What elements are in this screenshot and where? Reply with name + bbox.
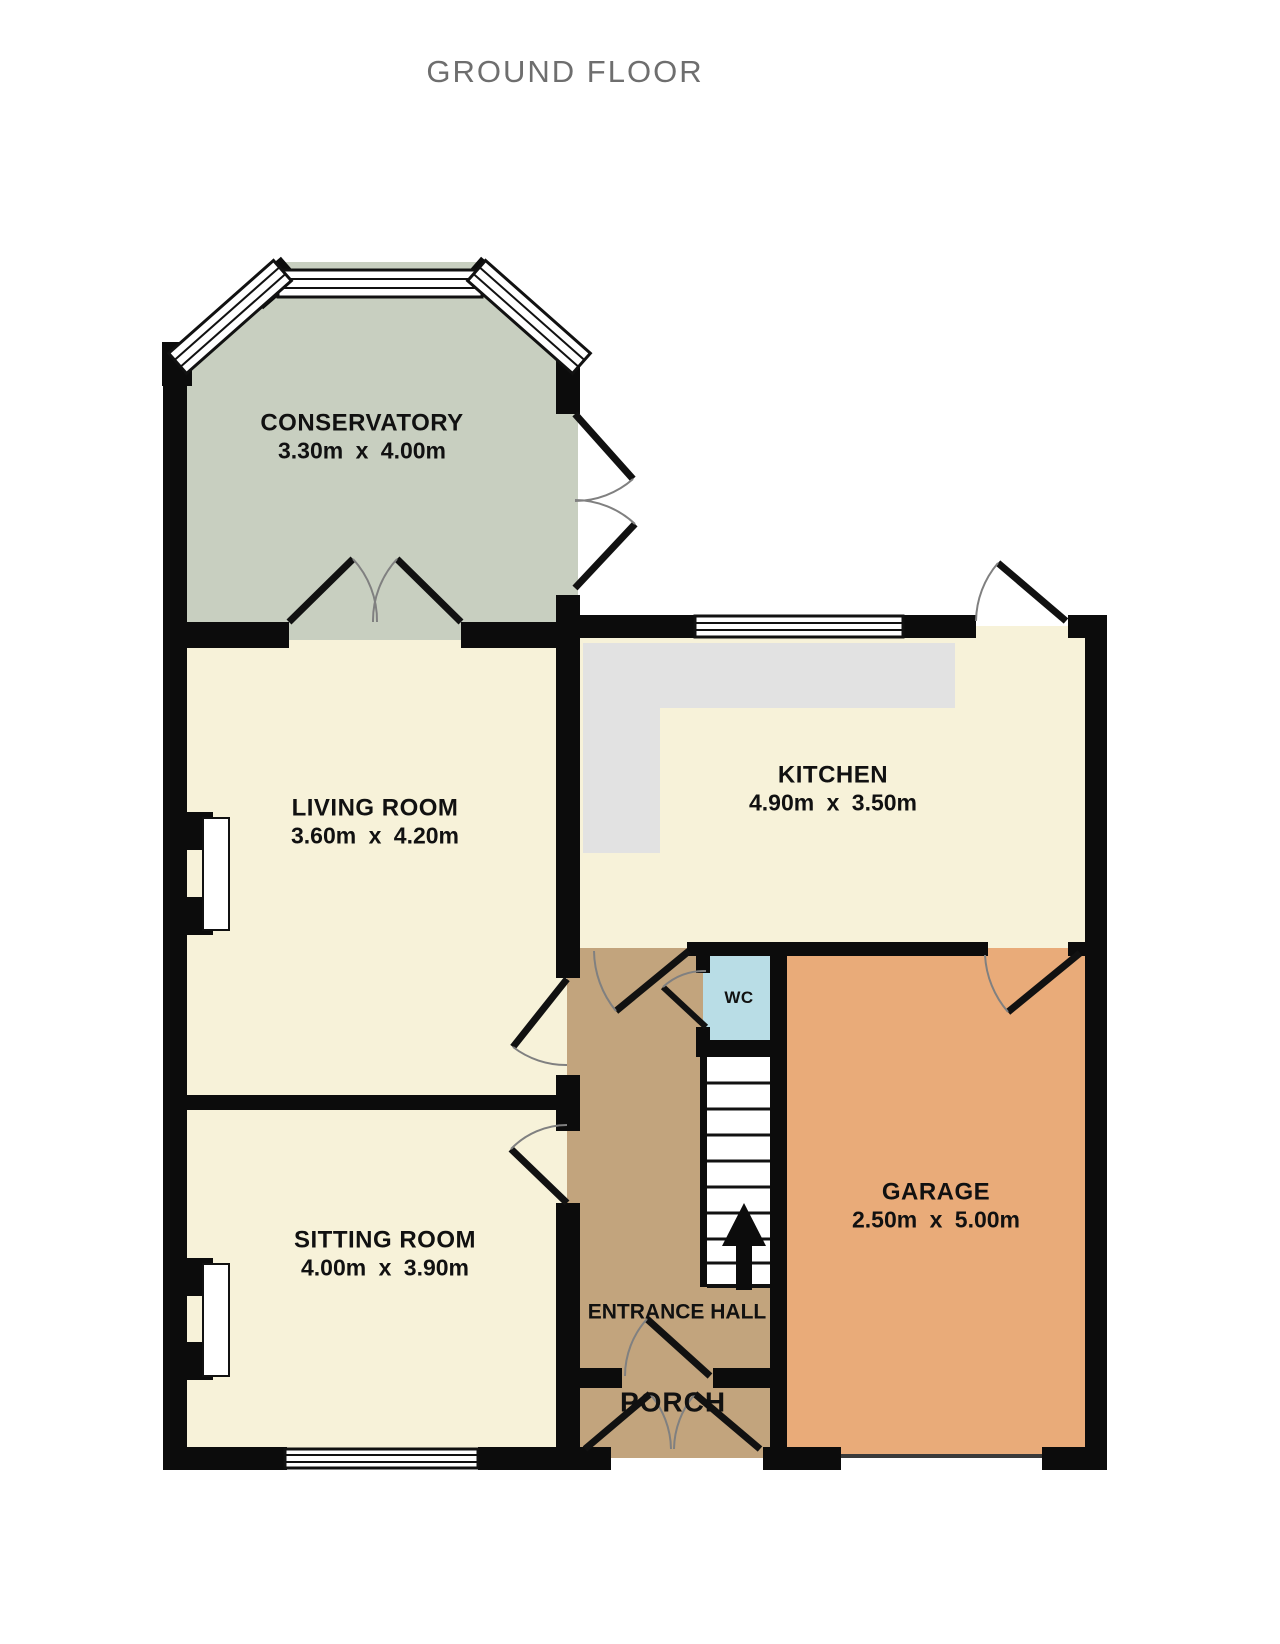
room-label-conservatory: CONSERVATORY 3.30m x 4.00m xyxy=(260,409,463,464)
floorplan-page: GROUND FLOOR xyxy=(0,0,1280,1644)
room-name: KITCHEN xyxy=(749,761,917,789)
room-label-kitchen: KITCHEN 4.90m x 3.50m xyxy=(749,761,917,816)
room-name: GARAGE xyxy=(852,1178,1020,1206)
room-dims: 4.90m x 3.50m xyxy=(749,790,917,817)
room-dims: 3.30m x 4.00m xyxy=(260,438,463,465)
room-label-entrance-hall: ENTRANCE HALL xyxy=(588,1301,767,1326)
door-conservatory-french xyxy=(575,414,635,588)
room-label-wc: WC xyxy=(724,988,753,1008)
window-kitchen xyxy=(695,616,903,637)
room-name: LIVING ROOM xyxy=(291,794,459,822)
room-living-floor xyxy=(187,640,568,1110)
floor-title: GROUND FLOOR xyxy=(426,54,703,90)
window-conservatory-top xyxy=(278,270,482,297)
room-label-garage: GARAGE 2.50m x 5.00m xyxy=(852,1178,1020,1233)
room-label-porch: PORCH xyxy=(620,1385,726,1418)
room-name: CONSERVATORY xyxy=(260,409,463,437)
staircase xyxy=(707,1057,770,1290)
room-name: SITTING ROOM xyxy=(294,1226,476,1254)
room-label-living-room: LIVING ROOM 3.60m x 4.20m xyxy=(291,794,459,849)
door-kitchen-exterior xyxy=(976,563,1066,621)
room-dims: 4.00m x 3.90m xyxy=(294,1255,476,1282)
room-dims: 2.50m x 5.00m xyxy=(852,1207,1020,1234)
room-label-sitting-room: SITTING ROOM 4.00m x 3.90m xyxy=(294,1226,476,1281)
room-dims: 3.60m x 4.20m xyxy=(291,823,459,850)
window-sitting-room xyxy=(285,1449,478,1468)
